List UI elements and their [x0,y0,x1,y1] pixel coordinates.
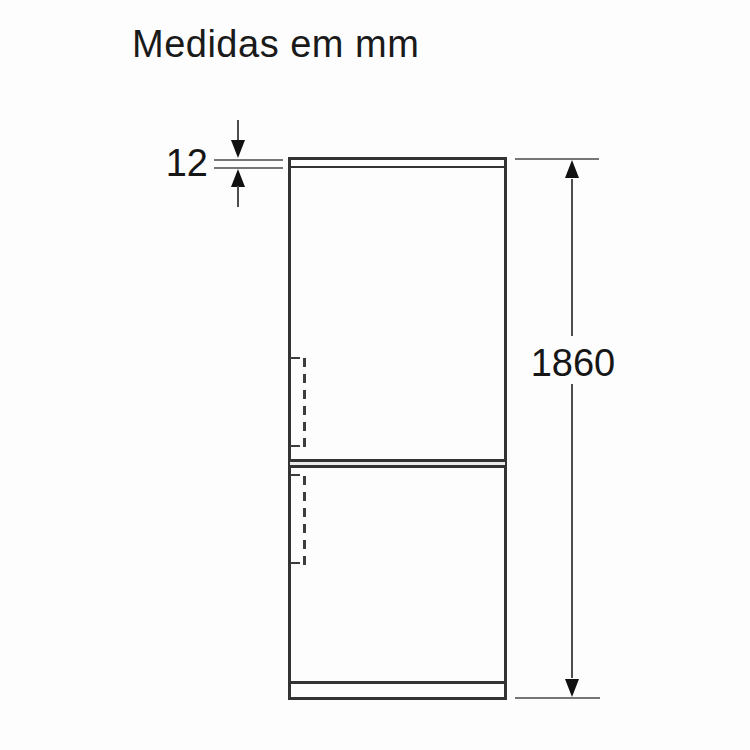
dimension-diagram: Medidas em mm 12 1860 [0,0,750,750]
top-panel-leader-line-above [237,120,239,141]
overall-height-label: 1860 [523,344,623,382]
upper-door-hinge-tick-bottom [290,445,300,447]
fridge-top-panel-line [291,166,504,168]
top-panel-leader-line-below [237,186,239,207]
height-dimension-line-lower [571,384,573,678]
fridge-plinth-line [291,681,504,684]
top-panel-thickness-label: 12 [150,144,208,182]
diagram-title: Medidas em mm [132,24,419,64]
lower-door-hinge-tick-top [290,474,300,476]
arrow-up-icon [565,160,579,178]
arrow-down-icon [231,140,245,158]
top-panel-extension-line-lower [214,167,283,169]
height-extension-line-bottom [515,697,600,699]
height-extension-line-top [515,158,599,160]
lower-door-hinge-dashed-line [303,476,306,565]
fridge-outline [288,157,507,700]
fridge-door-divider-line [290,459,505,468]
upper-door-hinge-dashed-line [303,358,306,453]
arrow-down-icon [565,679,579,697]
top-panel-extension-line-upper [214,159,283,161]
arrow-up-icon [231,169,245,187]
height-dimension-line-upper [571,179,573,336]
lower-door-hinge-tick-bottom [290,562,300,564]
upper-door-hinge-tick-top [290,357,300,359]
